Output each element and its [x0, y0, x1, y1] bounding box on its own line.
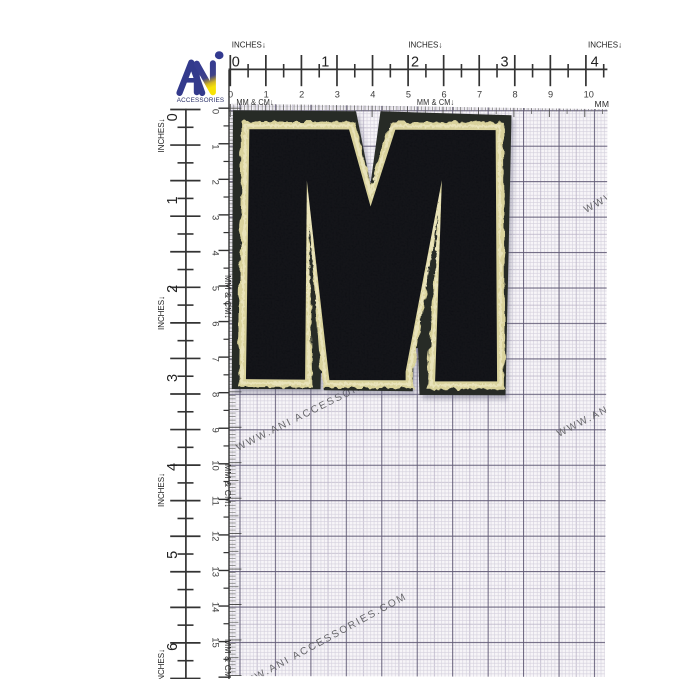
svg-text:9: 9	[548, 90, 553, 100]
svg-text:8: 8	[210, 392, 221, 397]
svg-text:13: 13	[210, 566, 221, 577]
svg-text:0: 0	[232, 55, 240, 71]
svg-text:2: 2	[411, 55, 419, 71]
svg-text:6: 6	[165, 643, 181, 651]
svg-text:2: 2	[165, 285, 181, 293]
svg-text:1: 1	[165, 196, 181, 204]
svg-text:9: 9	[210, 427, 221, 432]
svg-text:4: 4	[591, 55, 599, 71]
svg-text:14: 14	[210, 602, 221, 613]
svg-text:3: 3	[210, 215, 221, 220]
svg-text:4: 4	[370, 90, 375, 100]
svg-text:15: 15	[210, 637, 221, 648]
svg-text:10: 10	[584, 90, 594, 100]
svg-text:2: 2	[210, 180, 221, 185]
svg-text:4: 4	[165, 463, 181, 471]
svg-text:12: 12	[210, 531, 221, 542]
svg-text:3: 3	[335, 90, 340, 100]
svg-text:INCHES↓: INCHES↓	[588, 41, 622, 50]
svg-text:INCHES↓: INCHES↓	[408, 41, 442, 50]
svg-text:11: 11	[210, 496, 221, 506]
svg-text:7: 7	[477, 90, 482, 100]
svg-text:10: 10	[210, 460, 221, 471]
svg-text:MM & CM↓: MM & CM↓	[223, 464, 233, 508]
svg-text:MM & CM↓: MM & CM↓	[236, 97, 274, 107]
svg-text:MM & CM↓: MM & CM↓	[417, 97, 455, 107]
svg-text:INCHES↓: INCHES↓	[157, 473, 166, 507]
svg-text:6: 6	[210, 321, 221, 326]
svg-text:5: 5	[406, 90, 411, 100]
svg-text:0: 0	[165, 113, 181, 121]
svg-text:5: 5	[210, 286, 221, 291]
svg-text:INCHES↓: INCHES↓	[232, 41, 266, 50]
svg-text:MM & CM↓: MM & CM↓	[223, 639, 233, 679]
svg-text:5: 5	[165, 551, 181, 559]
svg-text:MM & CM↓: MM & CM↓	[223, 275, 233, 319]
svg-text:INCHES↓: INCHES↓	[157, 649, 166, 679]
svg-text:3: 3	[165, 374, 181, 382]
svg-text:4: 4	[210, 250, 221, 255]
svg-text:8: 8	[513, 90, 518, 100]
svg-text:3: 3	[501, 55, 509, 71]
svg-text:INCHES↓: INCHES↓	[157, 119, 166, 153]
svg-text:7: 7	[210, 357, 221, 362]
svg-text:1: 1	[321, 55, 329, 71]
svg-text:MM: MM	[595, 99, 610, 109]
svg-text:ACCESSORIES: ACCESSORIES	[177, 97, 225, 104]
svg-text:INCHES↓: INCHES↓	[157, 296, 166, 330]
svg-text:2: 2	[299, 90, 304, 100]
svg-text:1: 1	[210, 144, 221, 149]
svg-text:0: 0	[210, 109, 221, 114]
